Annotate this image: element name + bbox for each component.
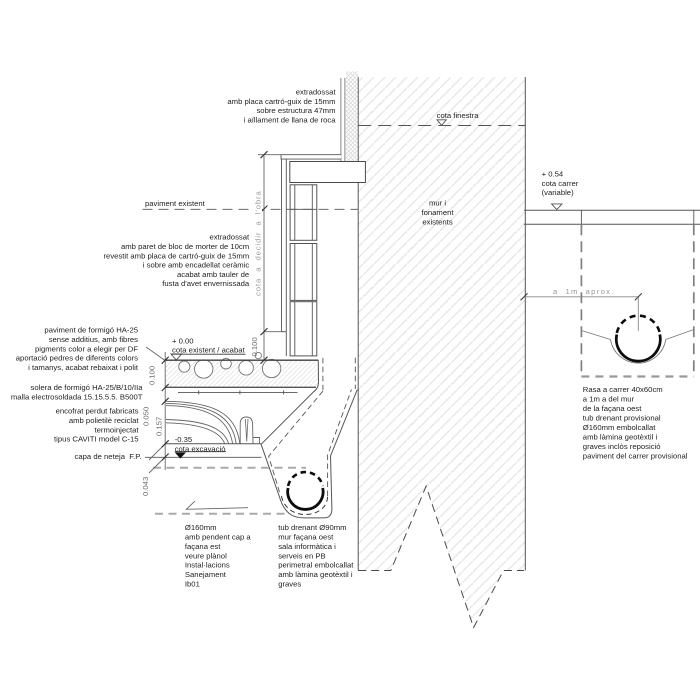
svg-text:acabat amb tauler de: acabat amb tauler de [177,270,249,279]
svg-text:mur i: mur i [429,199,446,208]
svg-text:veure plànol: veure plànol [185,551,227,560]
svg-text:Ø160mm embolcallat: Ø160mm embolcallat [583,423,656,432]
svg-text:pigments color a elegir per DF: pigments color a elegir per DF [35,344,138,353]
svg-text:0.043: 0.043 [141,477,150,496]
svg-text:de la façana oest: de la façana oest [583,404,642,413]
svg-text:graves inclòs reposició: graves inclòs reposició [583,442,661,451]
svg-text:aportació pedres de diferents: aportació pedres de diferents colors [16,354,138,363]
svg-text:cota finestra: cota finestra [437,111,480,120]
svg-text:tub drenant Ø90mm: tub drenant Ø90mm [278,523,346,532]
svg-text:+ 0.54: + 0.54 [542,170,564,179]
svg-text:amb placa cartró-guix de 15mm: amb placa cartró-guix de 15mm [227,97,335,106]
svg-text:serveis en PB: serveis en PB [278,551,325,560]
svg-text:i sobre amb encadellat ceràmic: i sobre amb encadellat ceràmic [143,261,250,270]
svg-text:i aïllament de llana de roca: i aïllament de llana de roca [244,115,337,124]
svg-text:Ib01: Ib01 [185,580,200,589]
svg-text:mur façana oest: mur façana oest [278,533,334,542]
svg-text:tub drenant provisional: tub drenant provisional [583,414,661,423]
svg-text:graves: graves [278,580,301,589]
svg-text:Sanejament: Sanejament [185,570,227,579]
svg-text:perimetral embolcallat: perimetral embolcallat [278,561,354,570]
svg-text:0.100: 0.100 [250,337,259,356]
svg-text:amb pendent cap a: amb pendent cap a [185,533,252,542]
svg-text:paviment de formigó HA-25: paviment de formigó HA-25 [44,326,138,335]
svg-text:fonament: fonament [421,208,454,217]
svg-text:amb paret de bloc de morter de: amb paret de bloc de morter de 10cm [121,242,249,251]
svg-text:cota carrer: cota carrer [542,179,579,188]
svg-text:amb polietilè reciclat: amb polietilè reciclat [69,416,140,425]
svg-text:0.050: 0.050 [142,407,151,426]
svg-text:a 1m a del mur: a 1m a del mur [583,395,635,404]
svg-text:extradossat: extradossat [209,233,250,242]
svg-text:paviment del carrer provisiona: paviment del carrer provisional [583,452,688,461]
svg-text:termoinjectat: termoinjectat [94,425,139,434]
svg-text:+ 0.00: + 0.00 [172,337,194,346]
svg-text:revestit amb placa de cartró-g: revestit amb placa de cartró-guix de 15m… [103,251,249,260]
svg-text:existents: existents [422,218,452,227]
svg-text:encofrat perdut fabricats: encofrat perdut fabricats [56,407,139,416]
svg-text:extradossat: extradossat [296,88,337,97]
svg-text:i tamanys, acabat rebaixat i p: i tamanys, acabat rebaixat i polit [28,363,139,372]
svg-text:-0.35: -0.35 [175,435,193,444]
svg-text:capa de neteja F.P.: capa de neteja F.P. [75,452,142,461]
svg-text:amb làmina geotèxtil i: amb làmina geotèxtil i [278,570,353,579]
svg-text:sala informàtica i: sala informàtica i [278,542,336,551]
svg-text:0.157: 0.157 [155,417,164,436]
svg-text:malla electrosoldada 15.15.5.5: malla electrosoldada 15.15.5.5. B500T [11,392,143,401]
svg-text:cota a decidir a l'obra: cota a decidir a l'obra [253,190,262,296]
svg-text:Ø160mm: Ø160mm [185,523,217,532]
svg-text:fusta d'avet envernissada: fusta d'avet envernissada [162,279,250,288]
svg-text:(variable): (variable) [542,188,574,197]
svg-text:cota existent / acabat: cota existent / acabat [172,346,246,355]
svg-text:paviment existent: paviment existent [145,199,206,208]
svg-text:0.100: 0.100 [148,366,157,385]
svg-text:tipus CAVITI model C-15: tipus CAVITI model C-15 [54,435,138,444]
svg-text:solera de formigó HA-25/B/10/I: solera de formigó HA-25/B/10/IIa [31,383,144,392]
svg-text:Instal·lacions: Instal·lacions [185,561,230,570]
svg-text:Rasa a carrer 40x60cm: Rasa a carrer 40x60cm [583,385,663,394]
svg-text:sobre estructura 47mm: sobre estructura 47mm [256,106,335,115]
svg-text:sense additius, amb fibres: sense additius, amb fibres [49,335,138,344]
svg-text:a 1m aprox.: a 1m aprox. [553,287,615,296]
svg-text:façana est: façana est [185,542,221,551]
svg-text:amb làmina geotèxtil i: amb làmina geotèxtil i [583,433,658,442]
